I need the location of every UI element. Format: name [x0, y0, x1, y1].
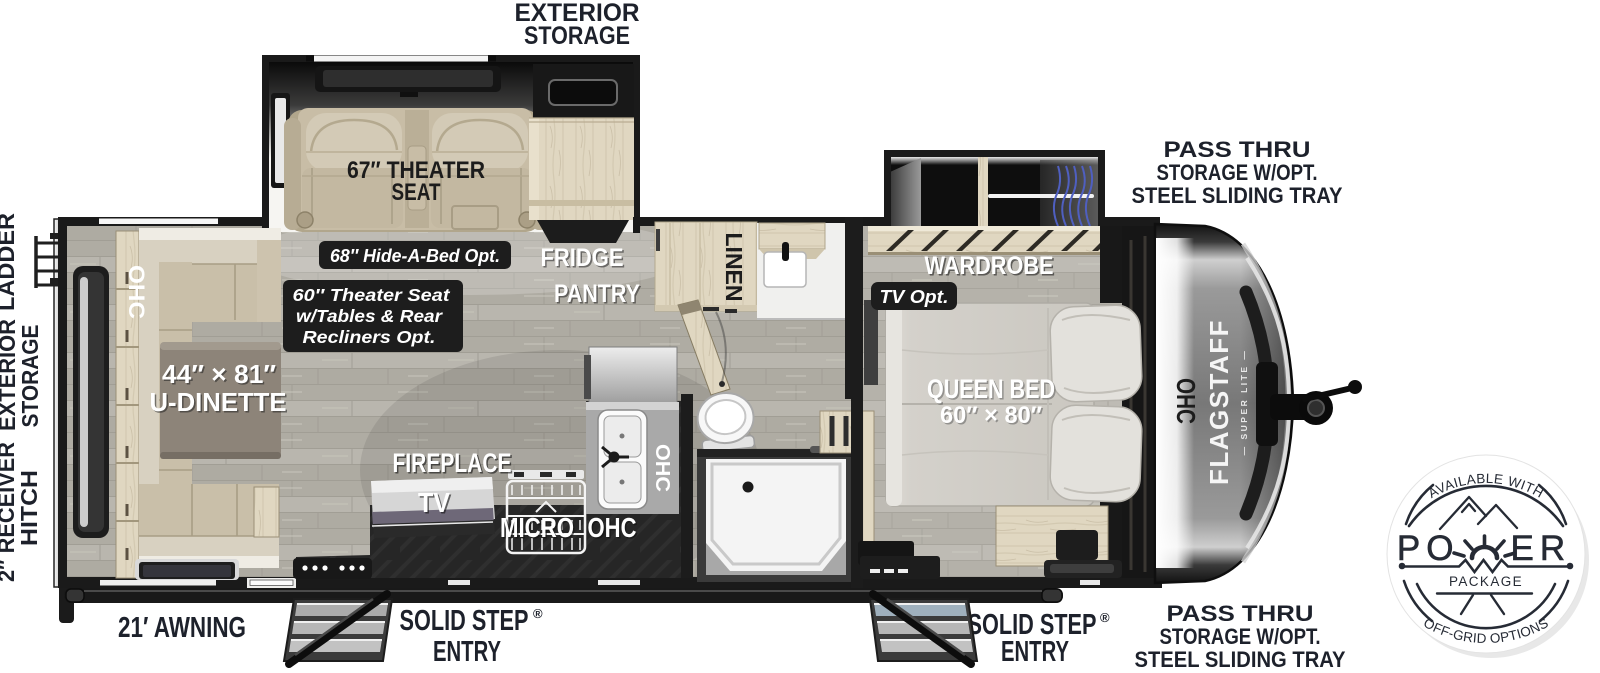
svg-text:®: ® — [1100, 610, 1110, 625]
svg-text:PASS THRU: PASS THRU — [1167, 601, 1314, 626]
svg-text:LINEN: LINEN — [721, 233, 747, 302]
svg-text:68″ Hide-A-Bed Opt.: 68″ Hide-A-Bed Opt. — [330, 246, 500, 266]
svg-text:STORAGE W/OPT.: STORAGE W/OPT. — [1160, 624, 1321, 649]
svg-text:PASS THRU: PASS THRU — [1164, 137, 1311, 162]
svg-text:SEAT: SEAT — [392, 179, 441, 206]
svg-text:LADDER: LADDER — [0, 213, 19, 311]
svg-text:STORAGE: STORAGE — [17, 325, 43, 428]
svg-text:STEEL SLIDING TRAY: STEEL SLIDING TRAY — [1135, 647, 1346, 672]
svg-text:®: ® — [533, 606, 543, 621]
svg-text:MICRO: MICRO — [500, 512, 574, 543]
svg-text:OHC: OHC — [124, 265, 149, 319]
svg-text:OHC: OHC — [588, 512, 637, 543]
svg-text:OHC: OHC — [651, 444, 673, 492]
svg-text:STORAGE: STORAGE — [524, 22, 630, 50]
svg-text:44″ × 81″: 44″ × 81″ — [162, 359, 276, 389]
svg-text:HITCH: HITCH — [16, 470, 42, 546]
svg-text:Recliners Opt.: Recliners Opt. — [303, 327, 436, 347]
svg-text:ENTRY: ENTRY — [1001, 636, 1069, 668]
svg-text:TV: TV — [418, 487, 450, 518]
svg-text:STEEL SLIDING TRAY: STEEL SLIDING TRAY — [1132, 183, 1343, 208]
svg-text:TV Opt.: TV Opt. — [880, 287, 949, 307]
svg-text:FRIDGE: FRIDGE — [541, 244, 624, 272]
svg-text:WARDROBE: WARDROBE — [925, 252, 1054, 280]
svg-text:60″ Theater Seat: 60″ Theater Seat — [293, 285, 451, 305]
svg-text:PACKAGE: PACKAGE — [1449, 574, 1523, 589]
svg-text:U-DINETTE: U-DINETTE — [150, 387, 287, 417]
svg-text:21′ AWNING: 21′ AWNING — [118, 612, 246, 644]
svg-text:SOLID STEP: SOLID STEP — [400, 605, 529, 637]
svg-text:OHC: OHC — [1171, 378, 1201, 424]
svg-text:FIREPLACE: FIREPLACE — [393, 448, 512, 478]
svg-text:QUEEN BED: QUEEN BED — [927, 374, 1055, 404]
svg-text:FLAGSTAFF: FLAGSTAFF — [1204, 319, 1234, 485]
svg-text:ENTRY: ENTRY — [433, 636, 501, 668]
svg-text:STORAGE W/OPT.: STORAGE W/OPT. — [1157, 160, 1318, 185]
svg-text:w/Tables & Rear: w/Tables & Rear — [296, 306, 443, 326]
svg-text:PANTRY: PANTRY — [554, 280, 640, 308]
svg-text:— SUPER LITE —: — SUPER LITE — — [1239, 349, 1249, 456]
svg-text:60″ × 80″: 60″ × 80″ — [940, 402, 1042, 429]
